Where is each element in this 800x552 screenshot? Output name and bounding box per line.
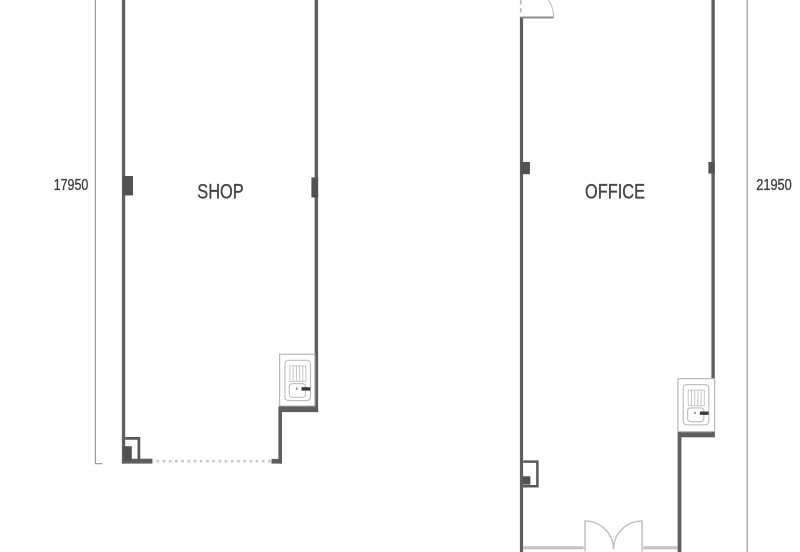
svg-text:21950: 21950	[756, 177, 792, 194]
svg-text:17950: 17950	[54, 177, 89, 194]
svg-text:OFFICE: OFFICE	[585, 181, 645, 204]
svg-text:SHOP: SHOP	[197, 181, 244, 204]
